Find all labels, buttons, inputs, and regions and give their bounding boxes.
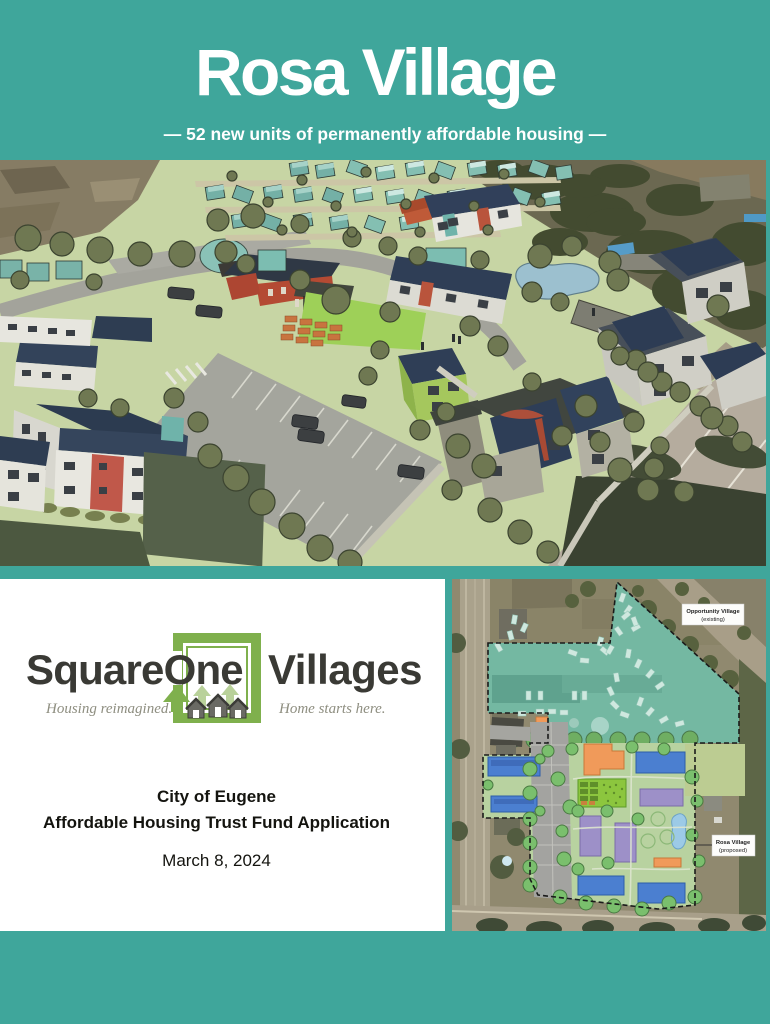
svg-text:Housing reimagined.: Housing reimagined. [45,701,172,717]
svg-text:Home starts here.: Home starts here. [278,701,386,717]
svg-text:SquareOne: SquareOne [26,646,243,693]
svg-text:(proposed): (proposed) [719,848,747,854]
svg-text:Rosa Village: Rosa Village [716,840,751,846]
svg-text:Villages: Villages [268,646,422,693]
svg-text:Opportunity Village: Opportunity Village [686,609,740,615]
svg-text:(existing): (existing) [701,617,725,623]
